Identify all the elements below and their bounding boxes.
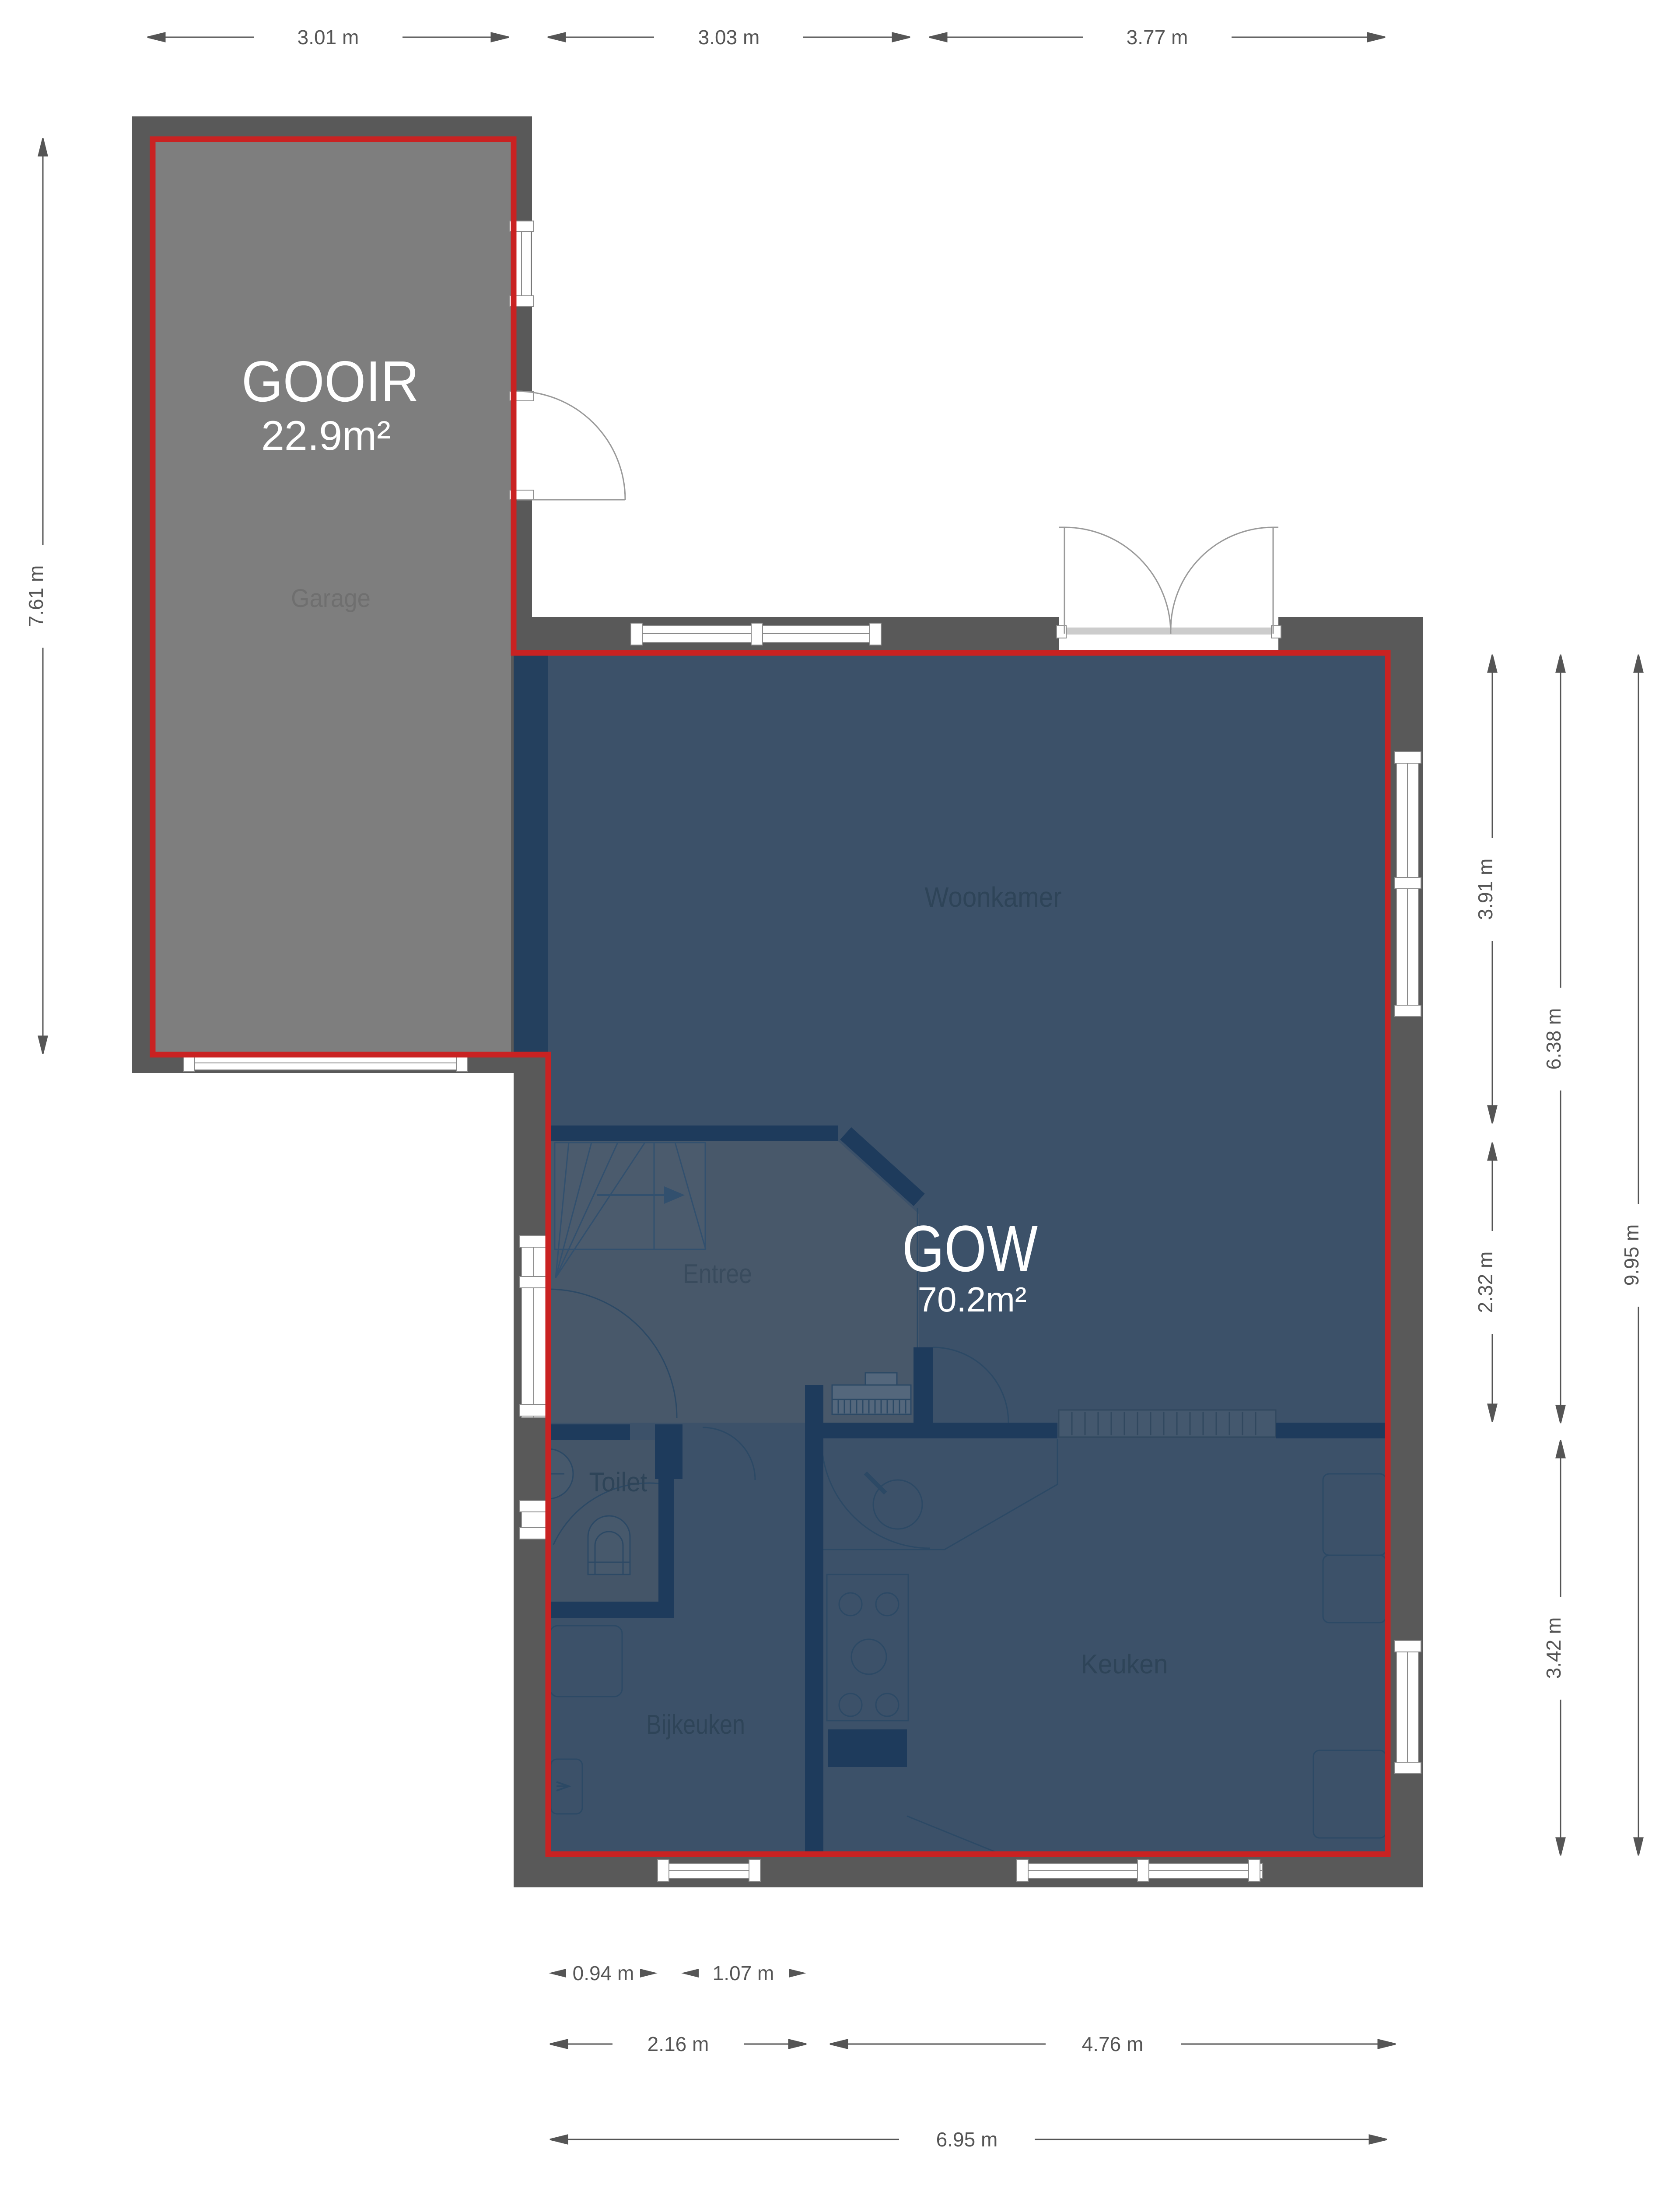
svg-text:2.32 m: 2.32 m xyxy=(1474,1252,1497,1313)
svg-text:GOW: GOW xyxy=(902,1212,1038,1285)
svg-text:3.42 m: 3.42 m xyxy=(1542,1617,1565,1679)
svg-text:Keuken: Keuken xyxy=(1081,1649,1168,1680)
svg-text:3.91 m: 3.91 m xyxy=(1474,859,1497,920)
svg-text:2.16 m: 2.16 m xyxy=(647,2033,709,2055)
svg-text:0.94 m: 0.94 m xyxy=(573,1962,634,1985)
svg-text:70.2m²: 70.2m² xyxy=(918,1280,1027,1319)
svg-text:1.07 m: 1.07 m xyxy=(713,1962,774,1985)
svg-text:3.77 m: 3.77 m xyxy=(1127,26,1188,49)
svg-text:3.01 m: 3.01 m xyxy=(297,26,359,49)
svg-text:9.95 m: 9.95 m xyxy=(1620,1224,1643,1286)
svg-text:3.03 m: 3.03 m xyxy=(698,26,760,49)
svg-text:GOOIR: GOOIR xyxy=(241,349,419,414)
svg-text:Woonkamer: Woonkamer xyxy=(925,881,1062,913)
svg-text:Toilet: Toilet xyxy=(589,1467,647,1497)
svg-text:6.95 m: 6.95 m xyxy=(936,2128,998,2151)
svg-text:Bijkeuken: Bijkeuken xyxy=(646,1710,745,1740)
svg-text:22.9m²: 22.9m² xyxy=(261,413,391,459)
svg-text:7.61 m: 7.61 m xyxy=(24,565,47,627)
svg-text:4.76 m: 4.76 m xyxy=(1082,2033,1144,2055)
svg-text:6.38 m: 6.38 m xyxy=(1542,1008,1565,1070)
svg-text:Entree: Entree xyxy=(683,1259,752,1289)
svg-text:Garage: Garage xyxy=(291,584,371,613)
